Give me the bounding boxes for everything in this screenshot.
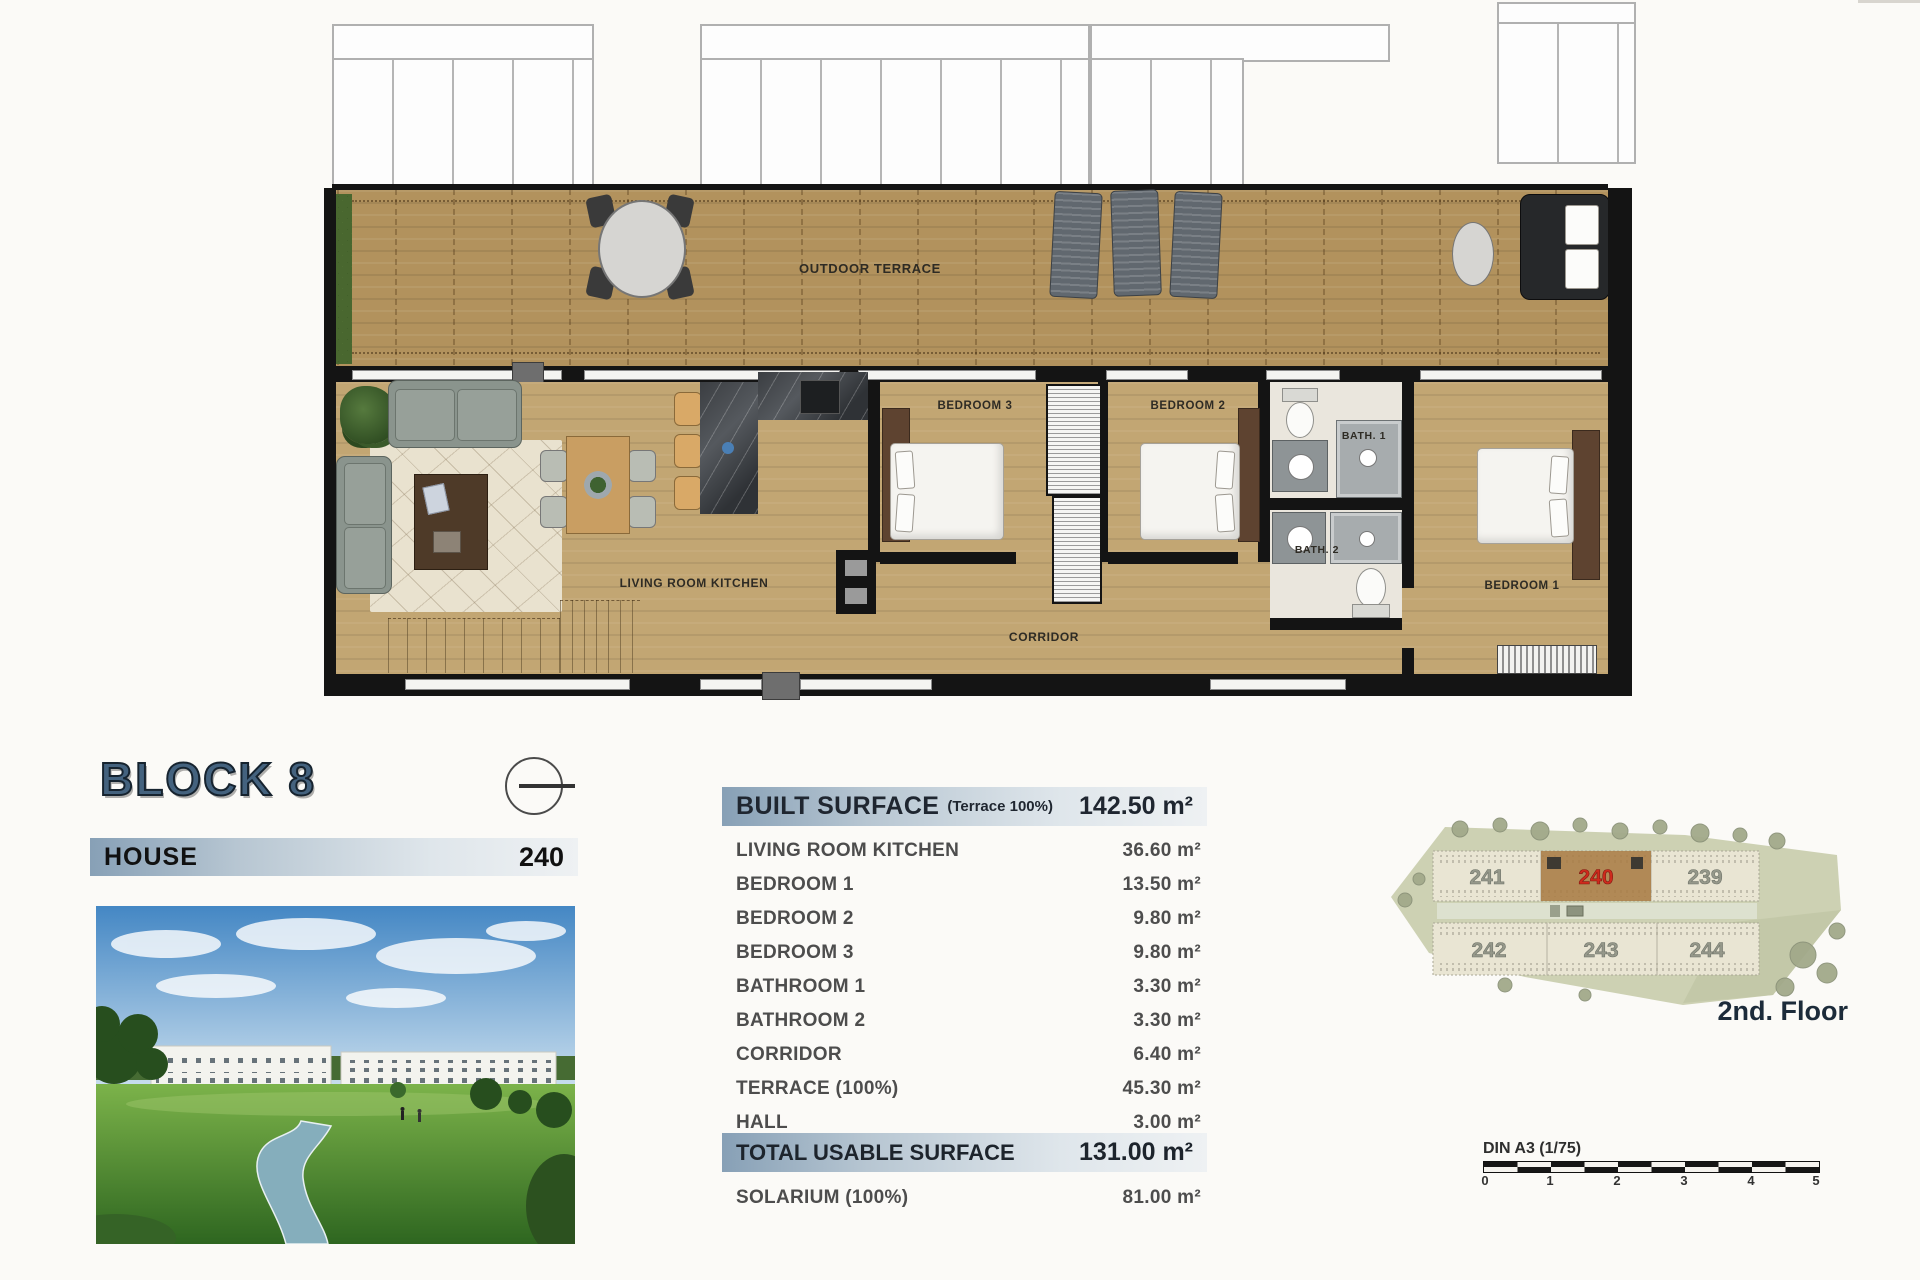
room-label-bath2: BATH. 2 [1267,544,1367,556]
window [1266,370,1340,380]
tick-2: 2 [1613,1173,1620,1188]
shower [1330,512,1402,564]
table-row: BEDROOM 2 9.80 m² [722,908,1207,930]
sink-counter [1272,512,1326,564]
wardrobe [1052,496,1102,604]
tick-0: 0 [1481,1173,1488,1188]
round-table [598,200,686,298]
window [1106,370,1188,380]
header-label: BUILT SURFACE [736,792,939,821]
hedge [336,194,352,364]
kitchen-island [700,382,758,514]
unit-number-239: 239 [1687,866,1722,889]
dining-chair [540,496,568,528]
wall [868,382,880,562]
row-value: 6.40 m² [1133,1044,1207,1066]
window [405,679,630,690]
window [1420,370,1602,380]
header-value: 142.50 m² [1079,792,1193,821]
table-header: BUILT SURFACE (Terrace 100%) 142.50 m² [722,787,1207,826]
section-mark-icon [505,757,563,815]
railing-panel [332,58,594,190]
floorplan-sheet: { "plan": { "labels": { "outdoor_terrace… [0,0,1920,1280]
window [700,679,762,690]
house-label: HOUSE [104,843,198,872]
table-row: LIVING ROOM KITCHEN 36.60 m² [722,840,1207,862]
row-value: 45.30 m² [1123,1078,1207,1100]
unit-number-240-highlight: 240 [1578,866,1613,889]
row-label: BEDROOM 1 [722,874,854,896]
row-value: 13.50 m² [1123,874,1207,896]
window [858,370,1036,380]
row-label: SOLARIUM (100%) [722,1187,908,1209]
railing-panel [700,58,1090,190]
sun-lounger [1049,191,1102,299]
scale-ticks: 0 1 2 3 4 5 [1483,1173,1818,1191]
tick-5: 5 [1812,1173,1819,1188]
sun-lounger [1169,191,1222,299]
table-row: TERRACE (100%) 45.30 m² [722,1078,1207,1100]
floor-plan: OUTDOOR TERRACE [0,0,1920,720]
row-value: 3.00 m² [1133,1112,1207,1134]
terrace-line [352,352,1600,354]
table-row: BEDROOM 3 9.80 m² [722,942,1207,964]
wall [1108,552,1238,564]
railing-bar [1090,24,1390,62]
unit-number-241: 241 [1469,866,1504,889]
coffee-table [414,474,488,570]
row-label: BEDROOM 3 [722,942,854,964]
wall [880,552,1016,564]
corner-mark [1858,0,1920,3]
railing-panel [1497,22,1636,164]
row-value: 81.00 m² [1123,1187,1207,1209]
room-label-outdoor-terrace: OUTDOOR TERRACE [775,261,965,276]
bar-stool [674,434,702,468]
staircase [560,600,640,673]
table-total: TOTAL USABLE SURFACE 131.00 m² [722,1133,1207,1172]
railing-bar [332,24,594,62]
row-label: BATHROOM 1 [722,976,865,998]
row-label: BATHROOM 2 [722,1010,865,1032]
railing-panel [1090,58,1244,190]
side-table [1452,222,1494,286]
total-value: 131.00 m² [1079,1138,1193,1167]
wall [1402,648,1414,674]
row-value: 9.80 m² [1133,908,1207,930]
row-value: 9.80 m² [1133,942,1207,964]
kitchen-counter [758,372,868,420]
scale-ruler [1483,1161,1820,1173]
bar-stool [674,392,702,426]
row-label: BEDROOM 2 [722,908,854,930]
header-note: (Terrace 100%) [947,798,1053,815]
window [800,679,932,690]
surface-table: BUILT SURFACE (Terrace 100%) 142.50 m² L… [722,787,1207,1217]
unit-number-242: 242 [1471,939,1506,962]
room-label-living: LIVING ROOM KITCHEN [584,576,804,590]
dining-chair [628,496,656,528]
window [1210,679,1346,690]
wall-right [1608,188,1632,696]
unit-number: 240 [519,842,564,873]
row-label: TERRACE (100%) [722,1078,899,1100]
bed-bedroom1 [1477,448,1574,544]
room-label-bath1: BATH. 1 [1314,430,1414,442]
tv-unit [836,550,876,614]
wardrobe [1238,408,1260,542]
table-row: BEDROOM 1 13.50 m² [722,874,1207,896]
property-photo [96,906,575,1244]
row-value: 3.30 m² [1133,976,1207,998]
row-label: CORRIDOR [722,1044,842,1066]
staircase [388,618,560,673]
deck-joints [336,190,1608,368]
room-label-bedroom2: BEDROOM 2 [1118,400,1258,412]
outdoor-sofa [1520,194,1610,300]
entry-mat [1497,645,1597,674]
dining-chair [628,450,656,482]
outdoor-terrace-floor [336,190,1608,368]
toilet [1356,568,1386,608]
block-title: BLOCK 8 [100,752,316,806]
wardrobe [1046,384,1102,496]
wall [1402,382,1414,588]
row-label: LIVING ROOM KITCHEN [722,840,959,862]
floor-label: 2nd. Floor [1598,996,1848,1027]
total-label: TOTAL USABLE SURFACE [736,1140,1015,1166]
wall [1270,498,1402,510]
dining-chair [540,450,568,482]
room-label-bedroom1: BEDROOM 1 [1452,580,1592,592]
unit-number-243: 243 [1583,939,1618,962]
table-row: BATHROOM 2 3.30 m² [722,1010,1207,1032]
entrance-door [762,672,800,700]
bar-stool [674,476,702,510]
table-row: BATHROOM 1 3.30 m² [722,976,1207,998]
sink-counter [1272,440,1328,492]
row-label: HALL [722,1112,788,1134]
wall-left [324,188,336,696]
sofa [388,380,522,448]
sun-lounger [1110,189,1162,297]
toilet [1352,604,1390,618]
terrace-line [352,200,1600,202]
dining-table [566,436,630,534]
wall [1270,618,1402,630]
sofa [336,456,392,594]
table-row: CORRIDOR 6.40 m² [722,1044,1207,1066]
room-label-corridor: CORRIDOR [974,630,1114,644]
house-number-bar: HOUSE 240 [90,838,578,876]
bed-bedroom3 [890,443,1004,540]
tick-3: 3 [1680,1173,1687,1188]
toilet [1286,402,1314,438]
tick-1: 1 [1546,1173,1553,1188]
scale-label: DIN A3 (1/75) [1483,1140,1819,1158]
room-label-bedroom3: BEDROOM 3 [905,400,1045,412]
wardrobe [1572,430,1600,580]
table-row: HALL 3.00 m² [722,1112,1207,1134]
bed-bedroom2 [1140,443,1240,540]
railing-bar [700,24,1090,62]
scale-bar: DIN A3 (1/75) 0 1 2 3 4 5 [1483,1140,1819,1191]
row-value: 3.30 m² [1133,1010,1207,1032]
row-value: 36.60 m² [1123,840,1207,862]
unit-number-244: 244 [1689,939,1724,962]
toilet [1282,388,1318,402]
tick-4: 4 [1747,1173,1754,1188]
solarium-row: SOLARIUM (100%) 81.00 m² [722,1187,1207,1209]
